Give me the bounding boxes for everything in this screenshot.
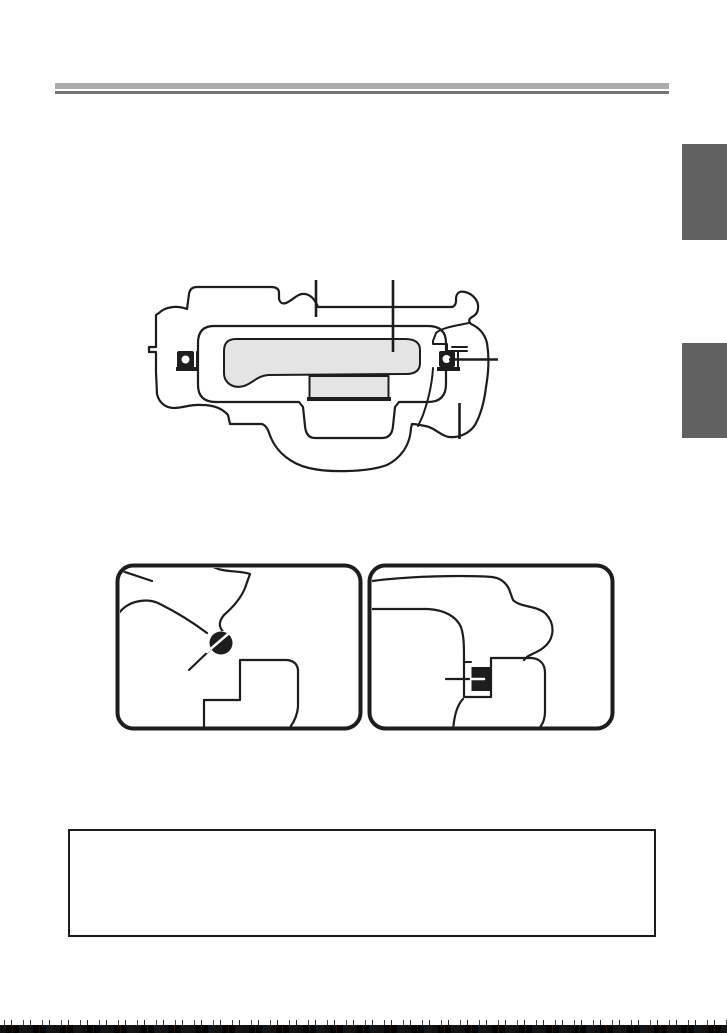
eyelet-ring [210,632,233,655]
body-lower-contour [453,699,463,731]
corner-contour [119,570,152,581]
manual-page: { "page": { "kind": "scanned-manual-page… [0,0,727,1033]
body-top-contour [372,576,552,660]
detail-box-left [118,566,361,731]
viewfinder-eyepiece [310,376,389,398]
detail-box-right-frame [370,566,613,729]
body-inner-contour [372,609,464,658]
note-box [68,829,656,937]
grip-step [204,660,298,730]
body-zigzag [212,566,250,632]
scan-noise-band [0,1025,727,1033]
detail-box-left-frame [118,566,361,729]
body-curve [119,601,207,633]
camera-back-diagram [149,280,498,471]
detail-box-right [370,566,613,732]
